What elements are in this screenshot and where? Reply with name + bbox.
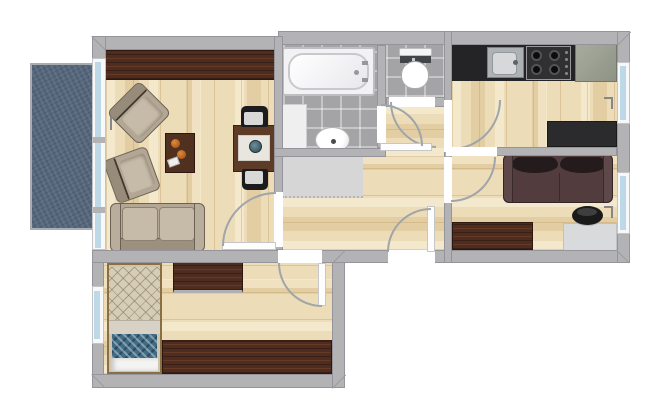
kitchen-sink-unit (487, 47, 524, 78)
burner (531, 64, 542, 75)
bed-fold (109, 320, 160, 334)
window-handle (604, 97, 613, 109)
decor-bowl (171, 139, 180, 148)
toilet-tank (399, 48, 432, 56)
sofa-cushion (122, 207, 158, 241)
bed (107, 263, 162, 374)
washbasin-drain (331, 139, 336, 144)
bedroom-left-window-glass (94, 291, 100, 339)
dresser-right-bedroom (452, 222, 533, 250)
bed-duvet (109, 267, 160, 320)
kitchen-window-glass (620, 66, 626, 120)
sideboard (105, 50, 275, 80)
sofa-dark-pillow (560, 157, 606, 173)
gas-hob (526, 46, 571, 80)
sofa (110, 203, 205, 252)
dining-chair-seat (245, 171, 263, 184)
wall-bottom-bedroom (92, 374, 345, 388)
desk (563, 223, 617, 252)
entry-mat (282, 157, 363, 198)
burner (549, 64, 560, 75)
bed-blanket (112, 334, 157, 358)
dining-chair (242, 169, 268, 190)
balcony-window-glass (95, 62, 101, 137)
balcony-window-glass (95, 213, 101, 248)
hob-knob (565, 65, 568, 68)
bedroom-right-window-glass (620, 176, 626, 230)
burner (531, 50, 542, 61)
dresser-lower-bedroom (173, 261, 243, 293)
bathtub-faucet (362, 61, 368, 65)
hob-knob (565, 51, 568, 54)
bathtub-faucet (362, 78, 368, 82)
sofa-dark (503, 154, 613, 203)
sofa-dark-pillow (512, 157, 558, 173)
sofa-armrest (194, 204, 204, 251)
bathtub-drain (354, 70, 359, 75)
sofa-armrest (111, 204, 121, 251)
desk-chair-highlight (577, 208, 597, 216)
burner (549, 50, 560, 61)
bathroom-cabinet (282, 104, 307, 150)
kitchen-table (547, 121, 617, 147)
sofa-dark-seat-seam (559, 173, 560, 201)
sofa-cushion (159, 207, 195, 241)
wall-right-bedroom-left (332, 252, 345, 388)
window-handle (604, 206, 613, 218)
kitchen-faucet (513, 60, 518, 65)
dining-chair (241, 106, 268, 127)
dining-chair-seat (244, 112, 263, 125)
balcony (30, 63, 95, 230)
sofa-dark-armrest (504, 155, 513, 202)
wardrobe (162, 340, 332, 374)
wall-top-right (278, 31, 630, 45)
window-handle (110, 117, 118, 130)
desk-chair (572, 206, 603, 225)
toilet-bowl (401, 61, 429, 89)
hob-knob (565, 58, 568, 61)
decor-bowl (177, 150, 186, 159)
wall-bath-bottom (274, 148, 386, 157)
bedroom-left-door-opening (278, 250, 322, 263)
kitchen-divider-gap (446, 147, 497, 156)
balcony-window-glass (95, 143, 101, 207)
bed-sheet (111, 358, 158, 371)
wall-bottom-main (92, 250, 630, 263)
sofa-dark-armrest (603, 155, 612, 202)
table-bowl (249, 140, 262, 153)
hob-knob (565, 72, 568, 75)
wall-top-living (92, 36, 282, 50)
bathtub (282, 47, 375, 96)
floor-plan (0, 0, 670, 408)
corner-cabinet (575, 42, 617, 82)
